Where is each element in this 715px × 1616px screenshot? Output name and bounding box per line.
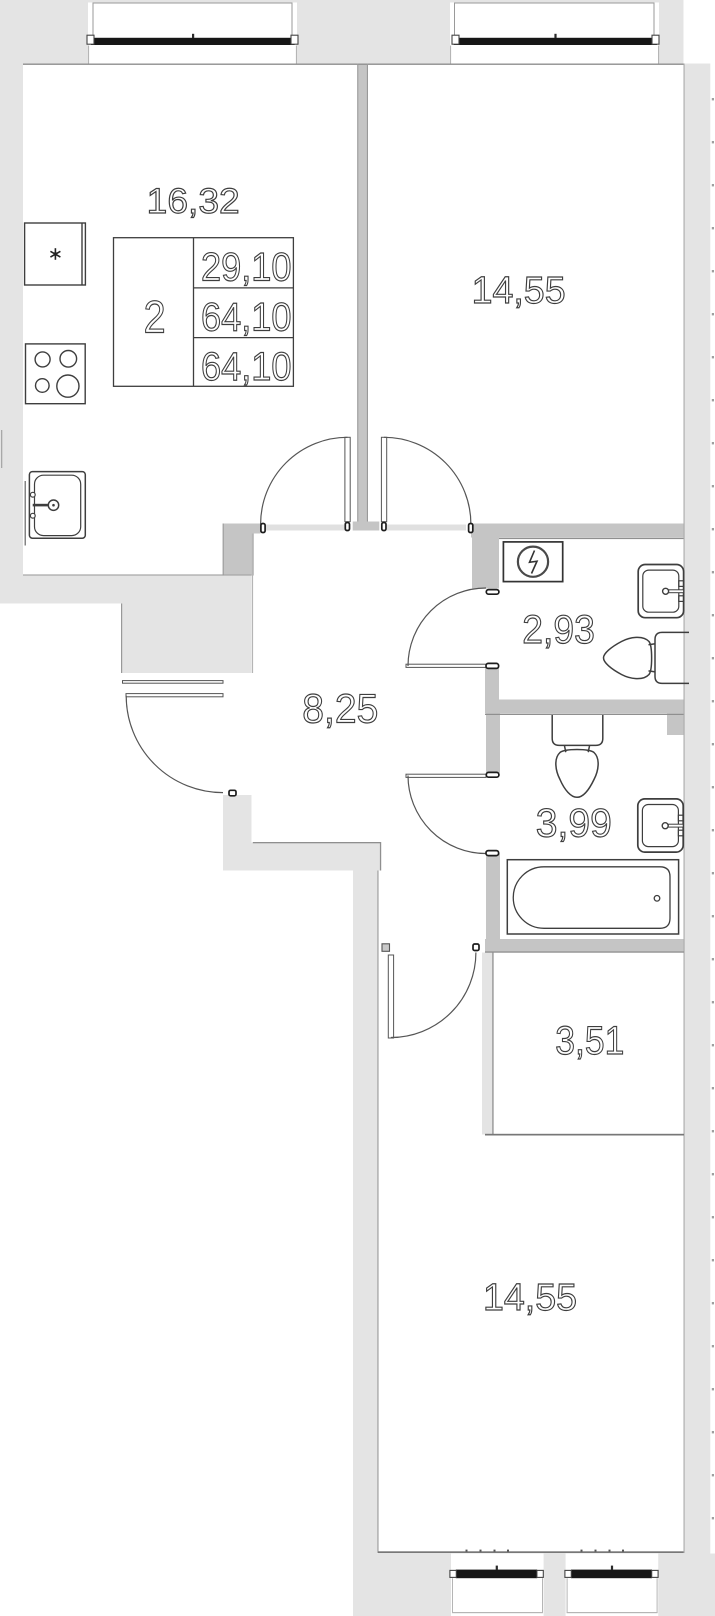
svg-text:3,99: 3,99 bbox=[536, 802, 612, 846]
svg-text:29,10: 29,10 bbox=[201, 246, 292, 290]
svg-text:14,55: 14,55 bbox=[472, 269, 566, 311]
svg-text:2: 2 bbox=[144, 292, 166, 343]
svg-text:8,25: 8,25 bbox=[302, 686, 378, 732]
svg-text:2,93: 2,93 bbox=[522, 608, 595, 652]
svg-text:3,51: 3,51 bbox=[555, 1019, 624, 1063]
svg-text:16,32: 16,32 bbox=[147, 181, 240, 221]
svg-text:64,10: 64,10 bbox=[201, 295, 292, 339]
svg-text:64,10: 64,10 bbox=[201, 345, 292, 389]
svg-text:14,55: 14,55 bbox=[483, 1276, 577, 1318]
